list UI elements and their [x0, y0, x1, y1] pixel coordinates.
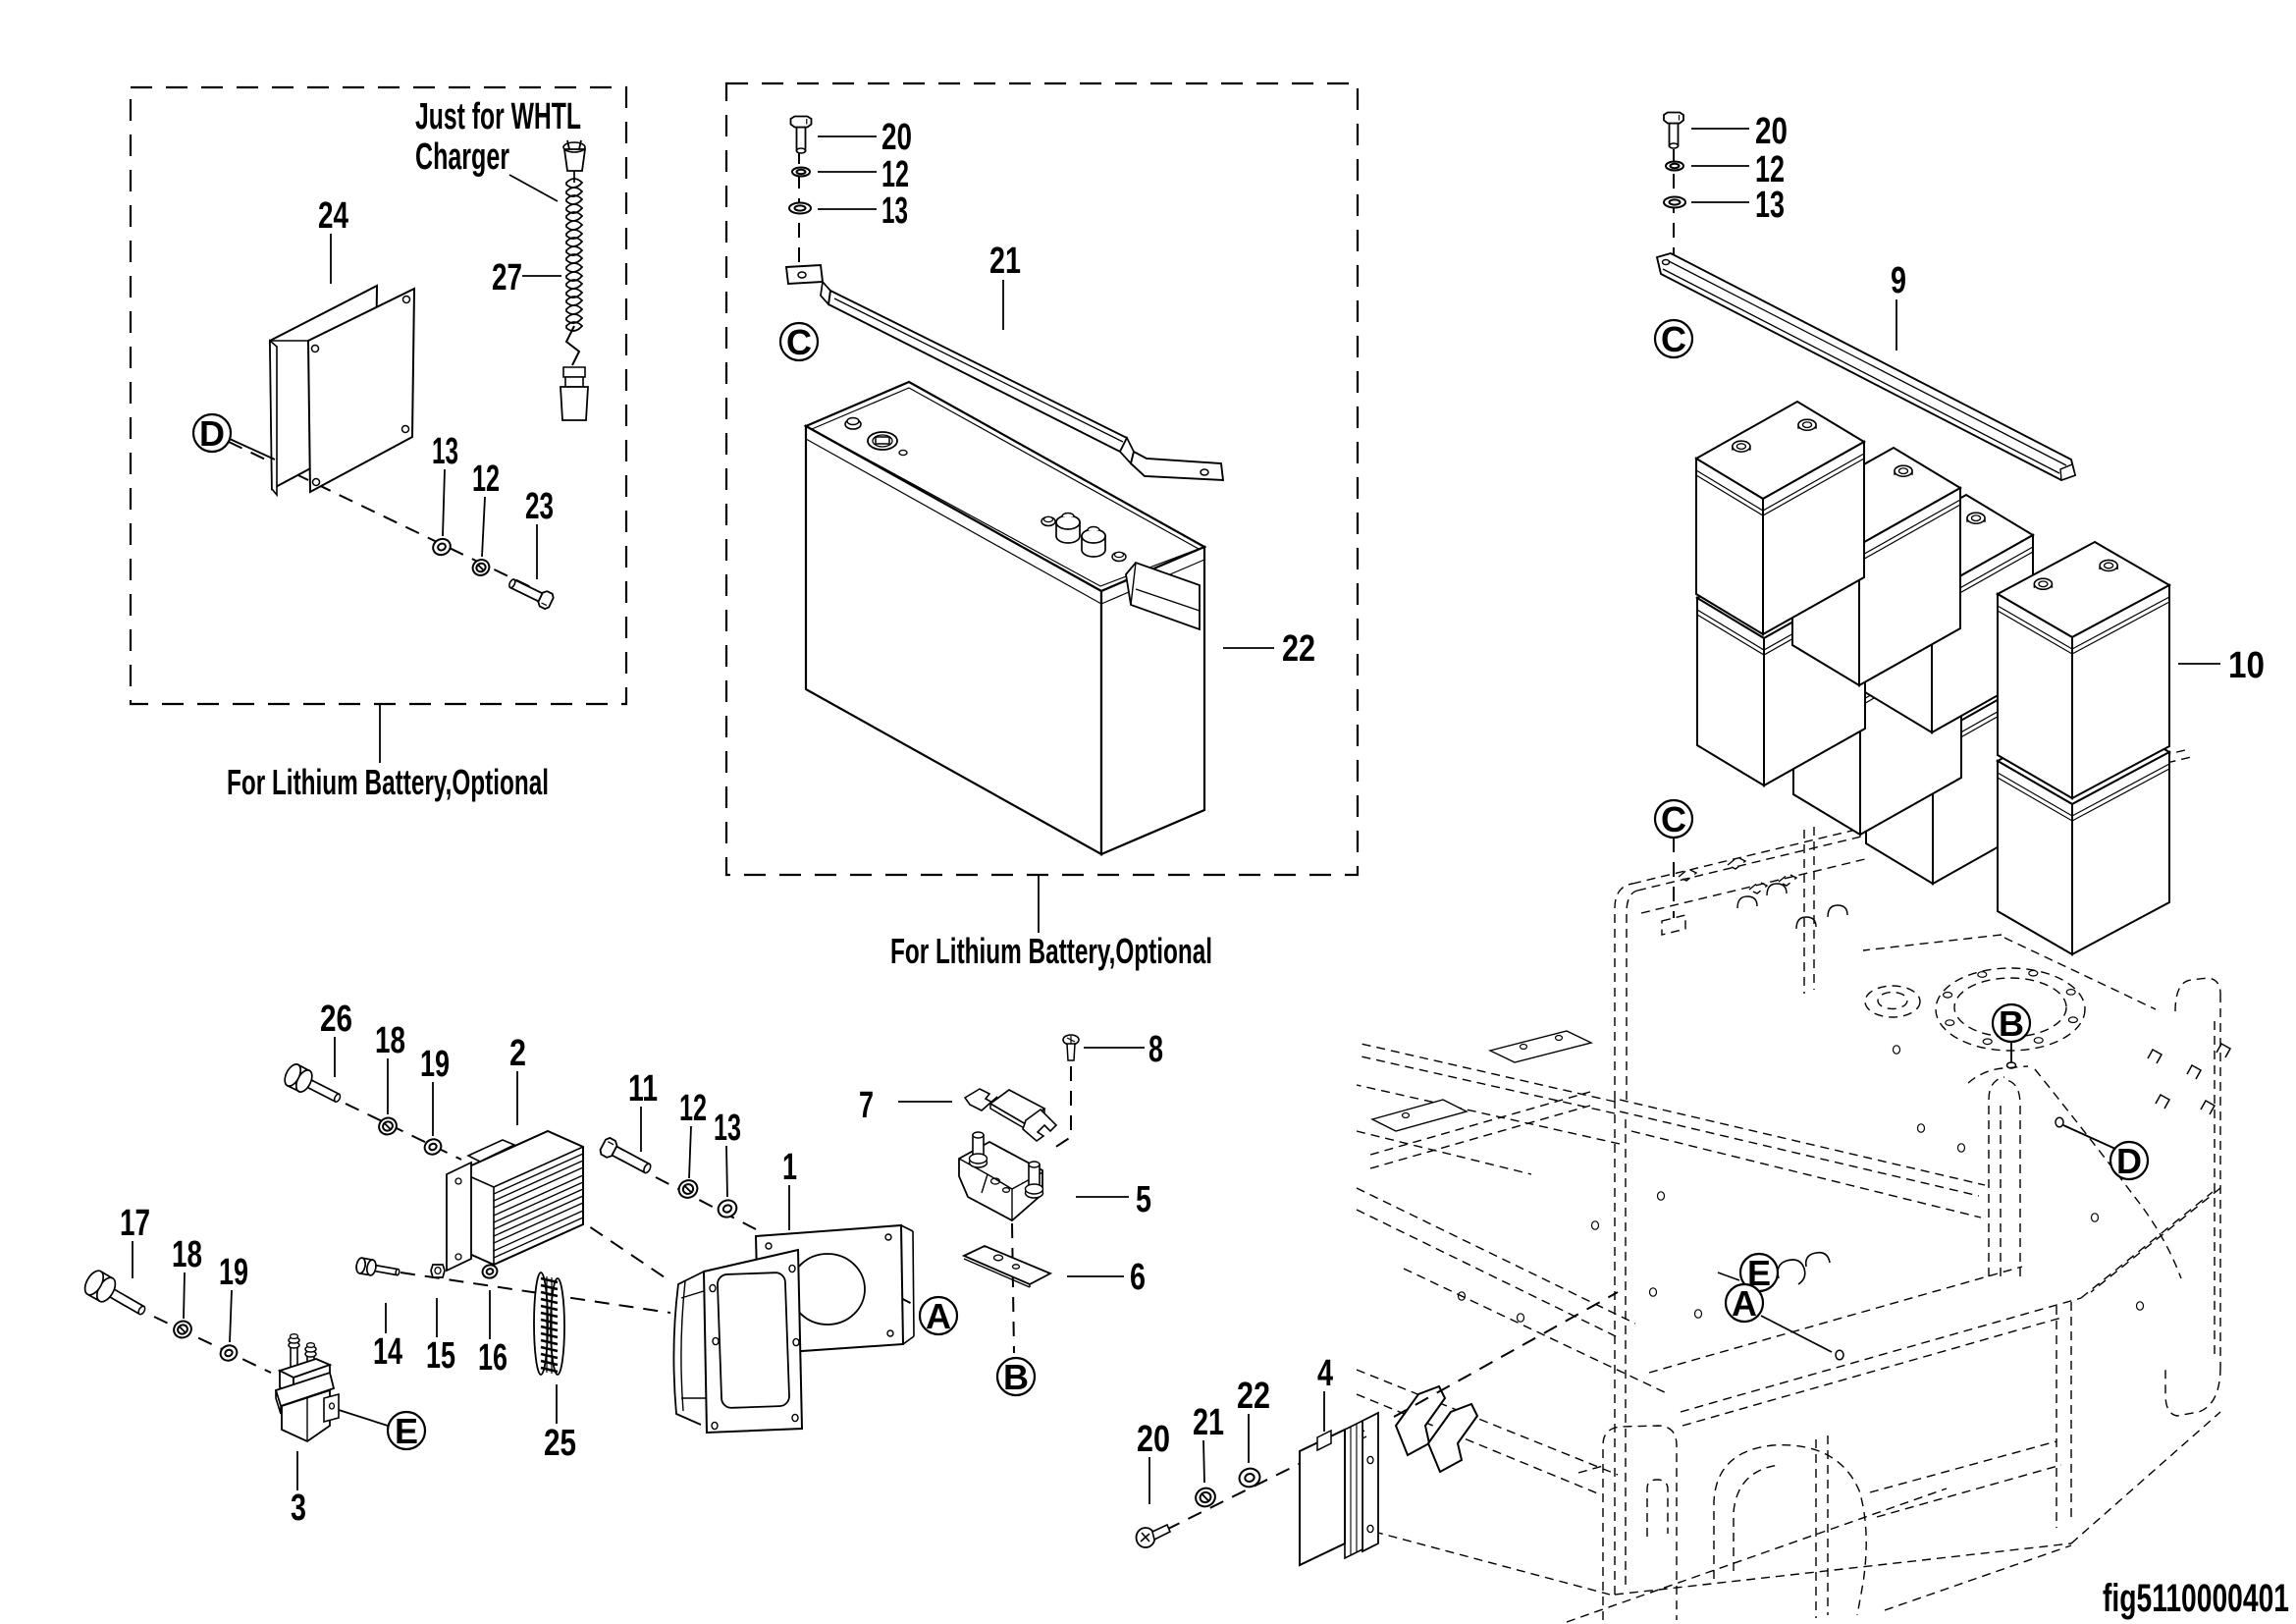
svg-text:16: 16	[478, 1337, 507, 1379]
svg-text:17: 17	[120, 1203, 150, 1244]
svg-text:21: 21	[989, 241, 1021, 282]
svg-text:20: 20	[1755, 111, 1788, 152]
svg-text:6: 6	[1130, 1257, 1146, 1298]
svg-text:18: 18	[172, 1234, 202, 1275]
svg-text:For Lithium Battery,Optional: For Lithium Battery,Optional	[890, 931, 1212, 971]
svg-text:12: 12	[472, 459, 500, 500]
svg-text:A: A	[1732, 1283, 1757, 1324]
svg-text:13: 13	[1755, 185, 1785, 226]
svg-text:13: 13	[714, 1108, 741, 1149]
svg-text:Just for WHTL: Just for WHTL	[415, 96, 581, 137]
svg-text:2: 2	[509, 1033, 526, 1074]
svg-text:E: E	[395, 1411, 418, 1451]
svg-text:C: C	[786, 322, 812, 362]
svg-text:23: 23	[525, 486, 554, 527]
svg-text:3: 3	[291, 1488, 306, 1529]
svg-text:19: 19	[219, 1252, 248, 1293]
svg-text:A: A	[926, 1296, 951, 1336]
svg-text:D: D	[199, 413, 225, 454]
svg-text:Charger: Charger	[415, 136, 509, 178]
svg-text:C: C	[1661, 319, 1686, 359]
svg-text:For Lithium Battery,Optional: For Lithium Battery,Optional	[227, 762, 549, 802]
svg-text:22: 22	[1237, 1376, 1270, 1417]
svg-text:C: C	[1661, 799, 1686, 839]
svg-text:26: 26	[320, 999, 352, 1040]
svg-text:27: 27	[492, 257, 522, 298]
svg-text:7: 7	[859, 1085, 874, 1126]
svg-text:1: 1	[782, 1147, 797, 1188]
svg-text:15: 15	[426, 1335, 455, 1377]
svg-text:25: 25	[544, 1423, 576, 1464]
svg-text:20: 20	[1137, 1419, 1170, 1460]
svg-text:12: 12	[881, 154, 909, 195]
svg-text:12: 12	[679, 1088, 707, 1129]
svg-text:10: 10	[2228, 645, 2265, 686]
svg-text:13: 13	[432, 431, 458, 472]
svg-text:B: B	[1003, 1357, 1029, 1397]
svg-text:24: 24	[318, 195, 348, 237]
svg-text:13: 13	[881, 190, 908, 232]
svg-text:19: 19	[420, 1044, 450, 1085]
svg-text:8: 8	[1148, 1029, 1163, 1070]
svg-text:11: 11	[628, 1068, 658, 1110]
svg-text:B: B	[1999, 1003, 2024, 1044]
svg-text:4: 4	[1317, 1353, 1333, 1394]
svg-text:9: 9	[1891, 260, 1906, 301]
svg-text:5: 5	[1136, 1179, 1151, 1220]
svg-text:18: 18	[375, 1020, 405, 1061]
svg-text:fig5110000401: fig5110000401	[2103, 1577, 2289, 1620]
svg-text:20: 20	[881, 117, 912, 158]
svg-text:14: 14	[373, 1331, 402, 1373]
svg-text:D: D	[2116, 1141, 2142, 1181]
svg-text:21: 21	[1193, 1402, 1224, 1443]
svg-text:22: 22	[1282, 628, 1315, 670]
